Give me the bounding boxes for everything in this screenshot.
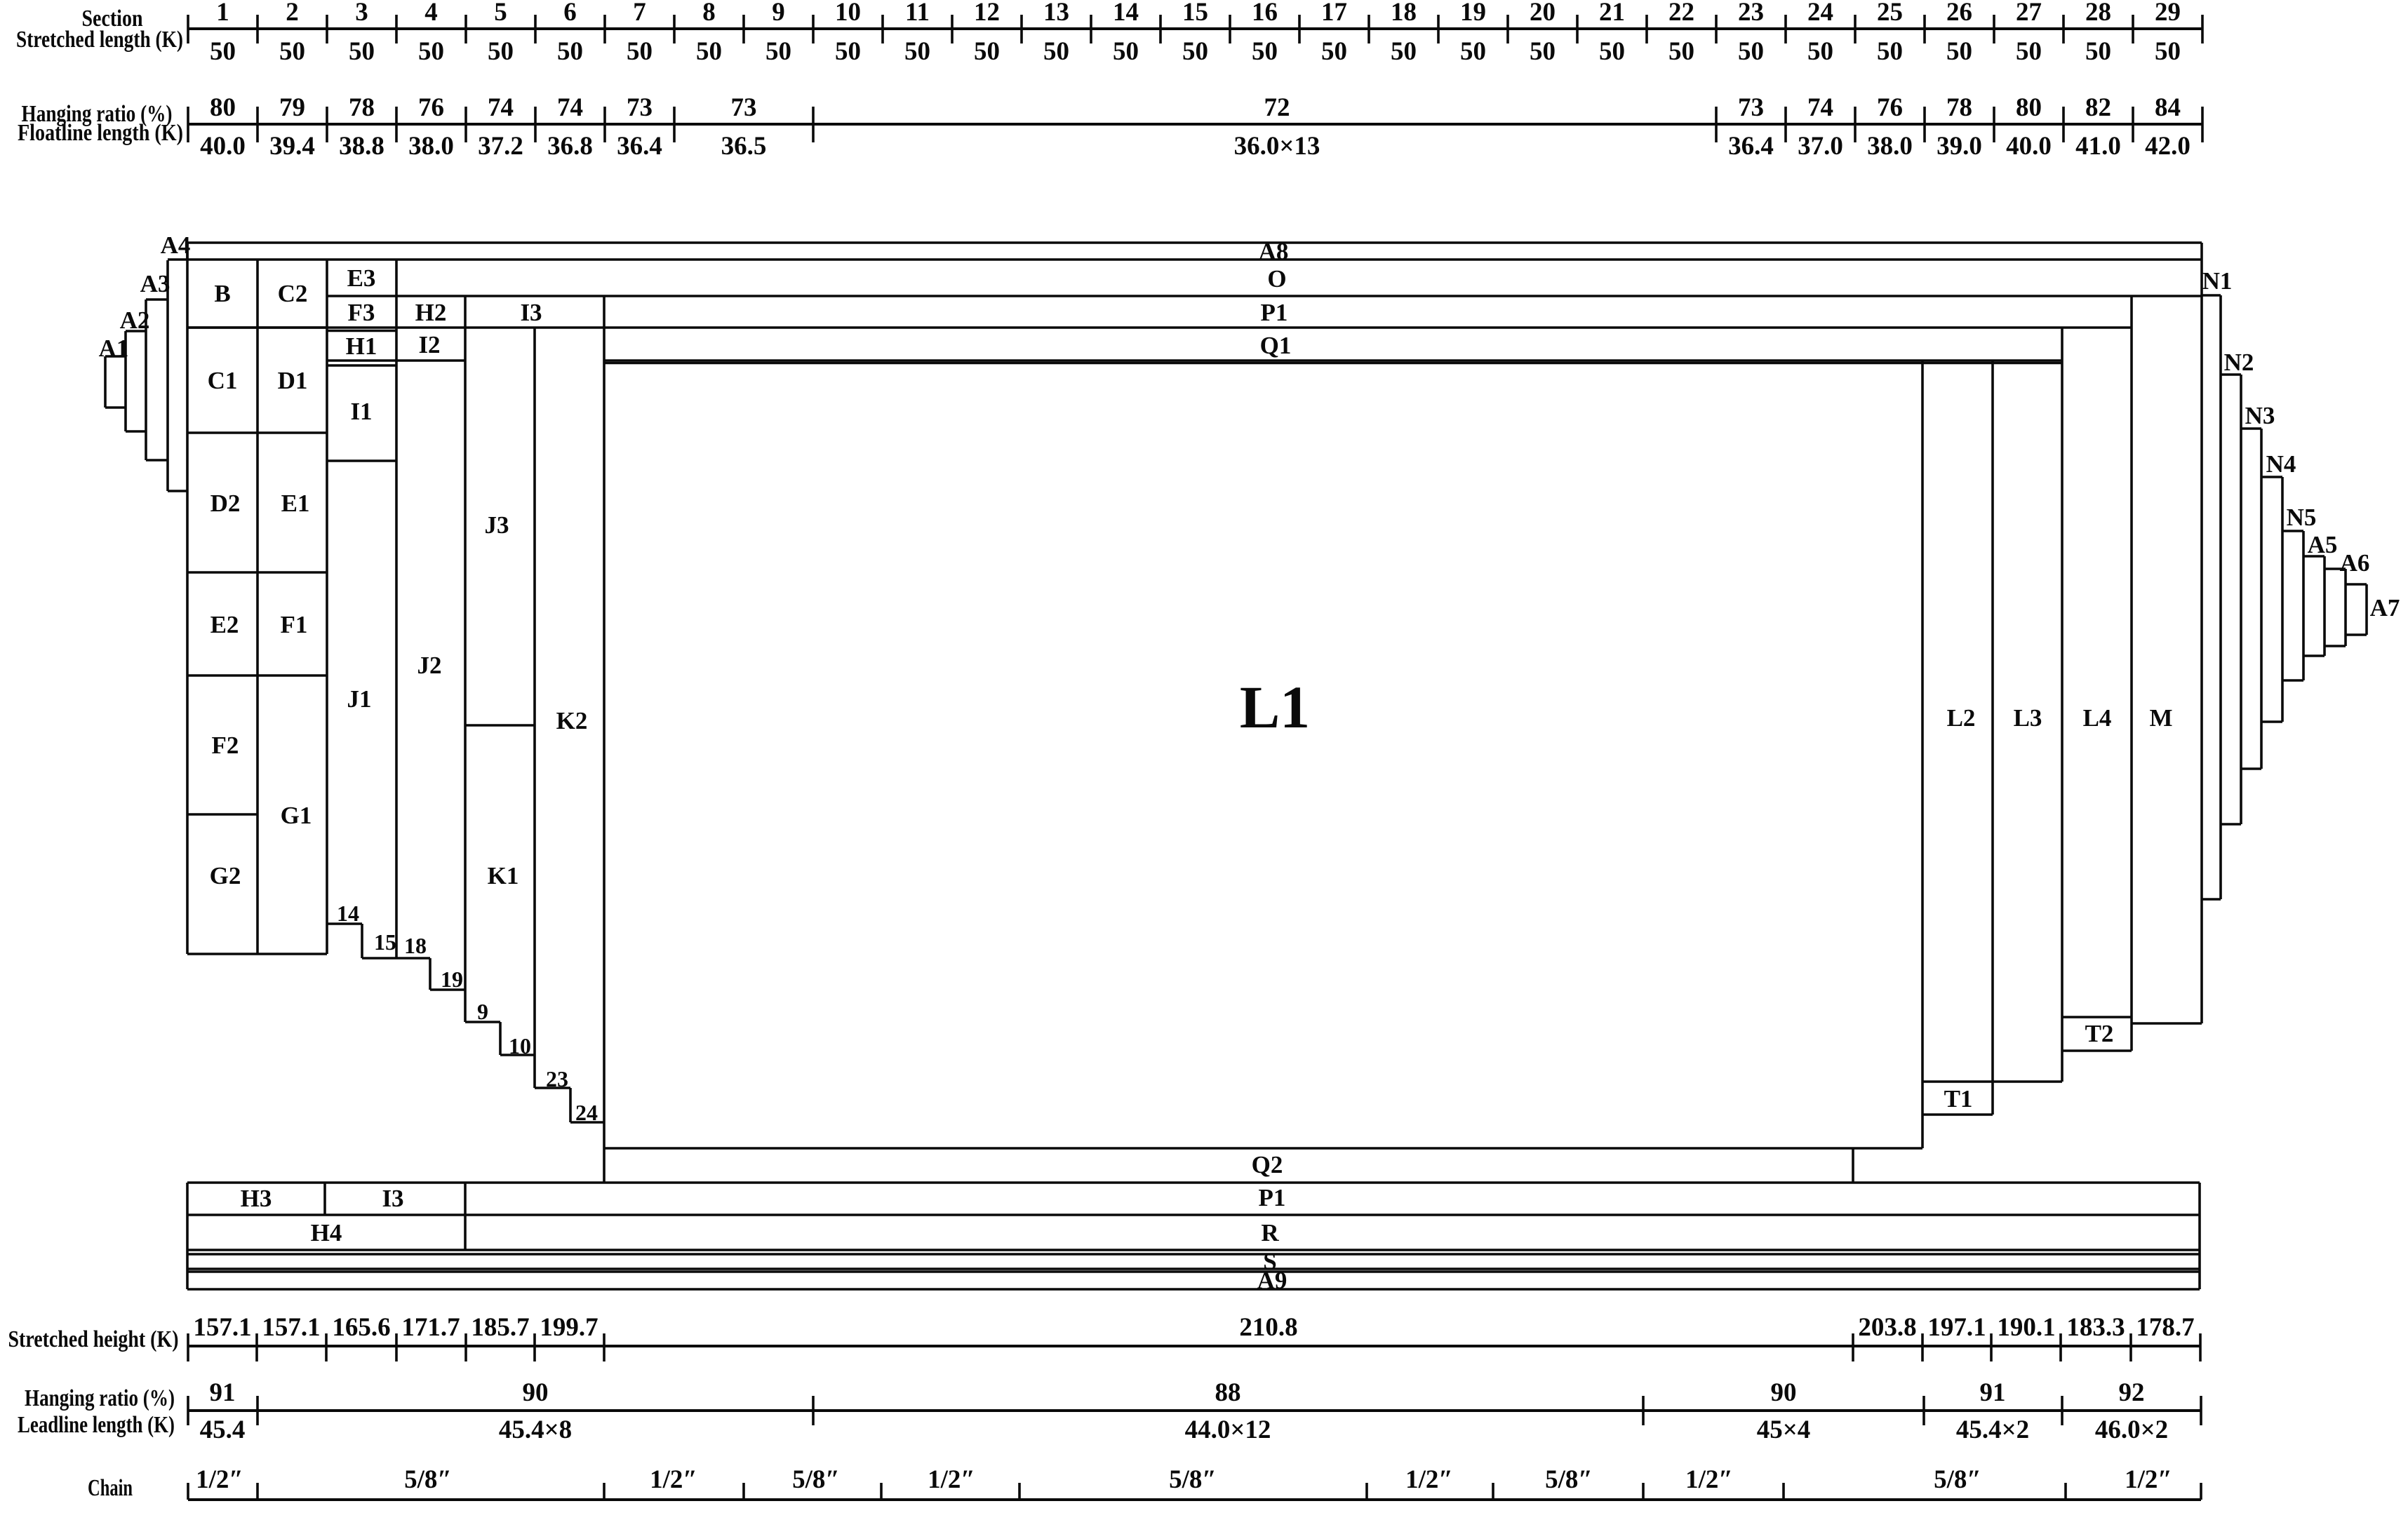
svg-text:92: 92 [2119, 1378, 2145, 1407]
svg-text:Stretched length (K): Stretched length (K) [16, 27, 183, 53]
svg-text:45.4: 45.4 [200, 1416, 246, 1444]
svg-text:J1: J1 [347, 685, 372, 713]
svg-text:91: 91 [210, 1378, 236, 1407]
svg-text:88: 88 [1215, 1378, 1241, 1407]
svg-text:14: 14 [1113, 0, 1139, 27]
svg-text:74: 74 [488, 93, 514, 122]
svg-text:72: 72 [1264, 93, 1290, 122]
svg-text:1/2″: 1/2″ [2125, 1465, 2172, 1494]
svg-text:15: 15 [374, 929, 396, 955]
svg-text:50: 50 [1252, 37, 1278, 66]
svg-text:12: 12 [974, 0, 1000, 27]
svg-text:5/8″: 5/8″ [1934, 1465, 1981, 1494]
svg-text:50: 50 [557, 37, 583, 66]
svg-text:50: 50 [974, 37, 1000, 66]
svg-text:44.0×12: 44.0×12 [1185, 1416, 1271, 1444]
svg-text:50: 50 [1460, 37, 1486, 66]
svg-text:23: 23 [1738, 0, 1764, 27]
svg-text:K1: K1 [488, 862, 519, 889]
svg-text:80: 80 [2016, 93, 2042, 122]
svg-text:A3: A3 [140, 270, 170, 297]
svg-text:40.0: 40.0 [2006, 132, 2052, 161]
svg-text:5: 5 [494, 0, 507, 27]
svg-text:36.4: 36.4 [617, 132, 662, 161]
svg-text:23: 23 [546, 1066, 568, 1091]
svg-text:37.2: 37.2 [478, 132, 523, 161]
svg-text:50: 50 [279, 37, 305, 66]
svg-text:Floatline length (K): Floatline length (K) [18, 120, 183, 146]
svg-text:I3: I3 [382, 1185, 403, 1212]
svg-text:L2: L2 [1947, 704, 1976, 732]
svg-text:73: 73 [1738, 93, 1764, 122]
svg-text:21: 21 [1599, 0, 1625, 27]
svg-text:Chain: Chain [88, 1475, 133, 1501]
svg-text:50: 50 [1530, 37, 1556, 66]
svg-text:P1: P1 [1261, 299, 1288, 326]
svg-text:178.7: 178.7 [2136, 1313, 2194, 1342]
svg-text:K2: K2 [556, 707, 588, 734]
svg-text:Q2: Q2 [1252, 1151, 1283, 1178]
svg-text:199.7: 199.7 [540, 1313, 598, 1342]
svg-text:7: 7 [633, 0, 646, 27]
svg-text:50: 50 [904, 37, 930, 66]
svg-text:L3: L3 [2014, 704, 2042, 732]
svg-text:1/2″: 1/2″ [650, 1465, 697, 1494]
svg-text:79: 79 [279, 93, 305, 122]
svg-text:41.0: 41.0 [2075, 132, 2121, 161]
svg-text:C1: C1 [208, 367, 238, 394]
svg-text:50: 50 [1113, 37, 1139, 66]
svg-text:I2: I2 [418, 331, 440, 358]
svg-text:R: R [1261, 1219, 1279, 1246]
svg-text:50: 50 [2085, 37, 2111, 66]
svg-text:183.3: 183.3 [2066, 1313, 2125, 1342]
svg-text:17: 17 [1321, 0, 1347, 27]
svg-text:22: 22 [1668, 0, 1694, 27]
svg-text:210.8: 210.8 [1239, 1313, 1297, 1342]
svg-text:157.1: 157.1 [262, 1313, 320, 1342]
svg-text:A2: A2 [120, 307, 150, 334]
svg-text:E2: E2 [210, 611, 239, 638]
svg-text:10: 10 [835, 0, 861, 27]
svg-text:50: 50 [349, 37, 375, 66]
svg-text:Hanging ratio (%): Hanging ratio (%) [25, 1385, 175, 1411]
svg-text:14: 14 [337, 901, 359, 926]
svg-text:50: 50 [627, 37, 653, 66]
svg-text:82: 82 [2085, 93, 2111, 122]
svg-text:90: 90 [1771, 1378, 1797, 1407]
svg-text:H1: H1 [346, 332, 377, 360]
svg-text:50: 50 [1946, 37, 1972, 66]
svg-text:J3: J3 [485, 511, 509, 539]
svg-text:A9: A9 [1257, 1267, 1287, 1294]
svg-text:73: 73 [731, 93, 757, 122]
svg-text:G2: G2 [210, 862, 241, 889]
svg-text:27: 27 [2016, 0, 2042, 27]
svg-text:50: 50 [696, 37, 722, 66]
svg-text:50: 50 [1321, 37, 1347, 66]
svg-text:A1: A1 [99, 335, 129, 362]
svg-text:84: 84 [2155, 93, 2181, 122]
svg-text:26: 26 [1946, 0, 1972, 27]
svg-text:J2: J2 [417, 652, 442, 679]
svg-text:80: 80 [210, 93, 236, 122]
svg-text:45×4: 45×4 [1757, 1416, 1811, 1444]
svg-text:I3: I3 [520, 299, 542, 326]
svg-text:38.8: 38.8 [339, 132, 384, 161]
svg-text:19: 19 [1460, 0, 1486, 27]
svg-text:78: 78 [1946, 93, 1972, 122]
svg-text:L4: L4 [2083, 704, 2112, 732]
svg-text:Stretched height (K): Stretched height (K) [8, 1326, 179, 1352]
svg-text:16: 16 [1252, 0, 1278, 27]
svg-text:H3: H3 [241, 1185, 272, 1212]
svg-text:13: 13 [1043, 0, 1069, 27]
svg-text:50: 50 [1668, 37, 1694, 66]
svg-text:28: 28 [2085, 0, 2111, 27]
svg-text:F3: F3 [348, 299, 375, 326]
svg-text:36.8: 36.8 [547, 132, 593, 161]
svg-text:15: 15 [1182, 0, 1208, 27]
svg-text:N3: N3 [2245, 402, 2275, 429]
svg-text:36.5: 36.5 [721, 132, 767, 161]
svg-text:6: 6 [563, 0, 577, 27]
svg-text:10: 10 [509, 1033, 531, 1058]
svg-text:1/2″: 1/2″ [928, 1465, 975, 1494]
svg-text:29: 29 [2155, 0, 2181, 27]
svg-text:18: 18 [1391, 0, 1417, 27]
svg-text:38.0: 38.0 [1867, 132, 1913, 161]
svg-text:25: 25 [1877, 0, 1903, 27]
svg-text:36.0×13: 36.0×13 [1234, 132, 1320, 161]
svg-text:20: 20 [1530, 0, 1556, 27]
svg-text:1/2″: 1/2″ [1405, 1465, 1453, 1494]
svg-text:74: 74 [557, 93, 583, 122]
svg-text:C2: C2 [278, 280, 308, 307]
svg-text:H2: H2 [415, 299, 447, 326]
svg-text:50: 50 [1807, 37, 1833, 66]
svg-text:50: 50 [1599, 37, 1625, 66]
svg-text:190.1: 190.1 [1997, 1313, 2055, 1342]
svg-text:N1: N1 [2202, 267, 2233, 295]
svg-text:D1: D1 [278, 367, 308, 394]
svg-text:50: 50 [2155, 37, 2181, 66]
svg-text:11: 11 [905, 0, 930, 27]
svg-text:1: 1 [216, 0, 229, 27]
svg-text:38.0: 38.0 [408, 132, 454, 161]
svg-text:197.1: 197.1 [1927, 1313, 1986, 1342]
svg-text:F1: F1 [281, 611, 308, 638]
svg-text:Leadline length (K): Leadline length (K) [18, 1412, 175, 1438]
svg-text:78: 78 [349, 93, 375, 122]
svg-text:A5: A5 [2308, 531, 2338, 558]
svg-text:A4: A4 [161, 231, 191, 259]
svg-text:50: 50 [1043, 37, 1069, 66]
svg-text:9: 9 [772, 0, 785, 27]
svg-text:39.0: 39.0 [1937, 132, 1982, 161]
svg-text:18: 18 [404, 933, 427, 958]
svg-text:N2: N2 [2224, 349, 2254, 376]
svg-text:E1: E1 [281, 490, 310, 517]
svg-text:50: 50 [1391, 37, 1417, 66]
svg-text:5/8″: 5/8″ [404, 1465, 452, 1494]
svg-text:39.4: 39.4 [269, 132, 315, 161]
svg-text:B: B [214, 280, 230, 307]
svg-text:90: 90 [523, 1378, 549, 1407]
svg-text:1/2″: 1/2″ [1685, 1465, 1733, 1494]
svg-text:165.6: 165.6 [332, 1313, 390, 1342]
svg-text:T1: T1 [1944, 1085, 1973, 1112]
svg-text:185.7: 185.7 [471, 1313, 529, 1342]
svg-text:5/8″: 5/8″ [792, 1465, 840, 1494]
svg-text:T2: T2 [2085, 1020, 2114, 1047]
svg-text:50: 50 [2016, 37, 2042, 66]
svg-text:5/8″: 5/8″ [1169, 1465, 1217, 1494]
svg-text:G1: G1 [281, 802, 312, 829]
svg-text:50: 50 [1738, 37, 1764, 66]
svg-text:H4: H4 [311, 1219, 342, 1246]
svg-text:50: 50 [488, 37, 514, 66]
svg-text:D2: D2 [210, 490, 241, 517]
svg-text:76: 76 [1877, 93, 1903, 122]
svg-text:M: M [2149, 704, 2172, 732]
svg-text:74: 74 [1807, 93, 1833, 122]
svg-text:76: 76 [418, 93, 444, 122]
svg-text:50: 50 [1877, 37, 1903, 66]
svg-text:2: 2 [286, 0, 299, 27]
svg-text:N4: N4 [2266, 450, 2296, 478]
svg-text:A6: A6 [2340, 549, 2370, 577]
svg-text:4: 4 [424, 0, 438, 27]
svg-text:203.8: 203.8 [1858, 1313, 1916, 1342]
svg-text:F2: F2 [212, 732, 239, 759]
svg-text:157.1: 157.1 [193, 1313, 251, 1342]
svg-text:A8: A8 [1259, 238, 1289, 265]
svg-text:73: 73 [627, 93, 653, 122]
svg-text:1/2″: 1/2″ [196, 1465, 243, 1494]
svg-text:E3: E3 [347, 264, 376, 292]
svg-text:36.4: 36.4 [1728, 132, 1774, 161]
svg-text:19: 19 [441, 967, 463, 992]
svg-text:8: 8 [702, 0, 716, 27]
svg-text:3: 3 [355, 0, 368, 27]
svg-text:O: O [1267, 265, 1286, 292]
svg-text:50: 50 [765, 37, 791, 66]
svg-text:N5: N5 [2287, 504, 2317, 531]
svg-text:91: 91 [1980, 1378, 2006, 1407]
svg-text:L1: L1 [1240, 673, 1310, 741]
svg-text:5/8″: 5/8″ [1545, 1465, 1593, 1494]
svg-text:50: 50 [835, 37, 861, 66]
svg-text:I1: I1 [350, 398, 372, 425]
svg-text:45.4×2: 45.4×2 [1956, 1416, 2029, 1444]
svg-text:50: 50 [1182, 37, 1208, 66]
svg-text:42.0: 42.0 [2145, 132, 2190, 161]
svg-text:46.0×2: 46.0×2 [2095, 1416, 2168, 1444]
svg-text:A7: A7 [2370, 594, 2400, 621]
svg-text:37.0: 37.0 [1798, 132, 1843, 161]
svg-text:24: 24 [575, 1100, 598, 1125]
svg-text:P1: P1 [1259, 1184, 1286, 1211]
svg-text:50: 50 [418, 37, 444, 66]
svg-text:Q1: Q1 [1260, 332, 1292, 359]
svg-text:24: 24 [1807, 0, 1833, 27]
svg-text:171.7: 171.7 [401, 1313, 460, 1342]
svg-text:50: 50 [210, 37, 236, 66]
svg-text:9: 9 [477, 999, 488, 1024]
svg-text:45.4×8: 45.4×8 [499, 1416, 572, 1444]
svg-text:40.0: 40.0 [200, 132, 246, 161]
